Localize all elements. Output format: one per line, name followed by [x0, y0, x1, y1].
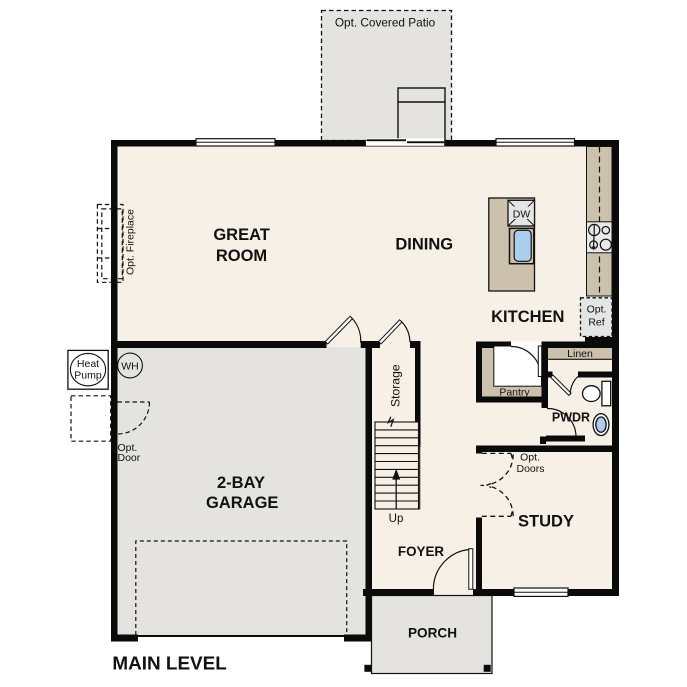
svg-text:Opt. Covered Patio: Opt. Covered Patio — [335, 15, 436, 29]
svg-text:Linen: Linen — [567, 348, 593, 360]
svg-text:MAIN LEVEL: MAIN LEVEL — [112, 653, 226, 674]
svg-text:PORCH: PORCH — [408, 626, 457, 641]
svg-text:DW: DW — [513, 209, 531, 221]
svg-text:WH: WH — [121, 360, 139, 372]
svg-text:GARAGE: GARAGE — [206, 494, 278, 512]
svg-text:STUDY: STUDY — [518, 512, 574, 530]
svg-text:FOYER: FOYER — [398, 544, 444, 559]
svg-text:KITCHEN: KITCHEN — [491, 308, 564, 326]
svg-text:Ref: Ref — [588, 317, 604, 329]
svg-text:Opt.: Opt. — [520, 451, 540, 463]
svg-text:2-BAY: 2-BAY — [217, 474, 265, 492]
svg-text:Opt.: Opt. — [587, 304, 607, 316]
svg-text:GREAT: GREAT — [213, 226, 270, 244]
svg-text:Pump: Pump — [74, 370, 102, 382]
svg-text:Heat: Heat — [77, 358, 99, 370]
svg-text:Up: Up — [389, 513, 404, 525]
svg-text:Pantry: Pantry — [499, 387, 530, 399]
svg-text:Doors: Doors — [516, 463, 544, 475]
svg-text:PWDR: PWDR — [552, 411, 590, 425]
svg-text:DINING: DINING — [395, 236, 453, 254]
svg-text:ROOM: ROOM — [216, 247, 267, 265]
svg-text:Door: Door — [118, 452, 141, 464]
svg-text:Storage: Storage — [389, 364, 403, 407]
svg-text:Opt. Fireplace: Opt. Fireplace — [125, 209, 137, 275]
